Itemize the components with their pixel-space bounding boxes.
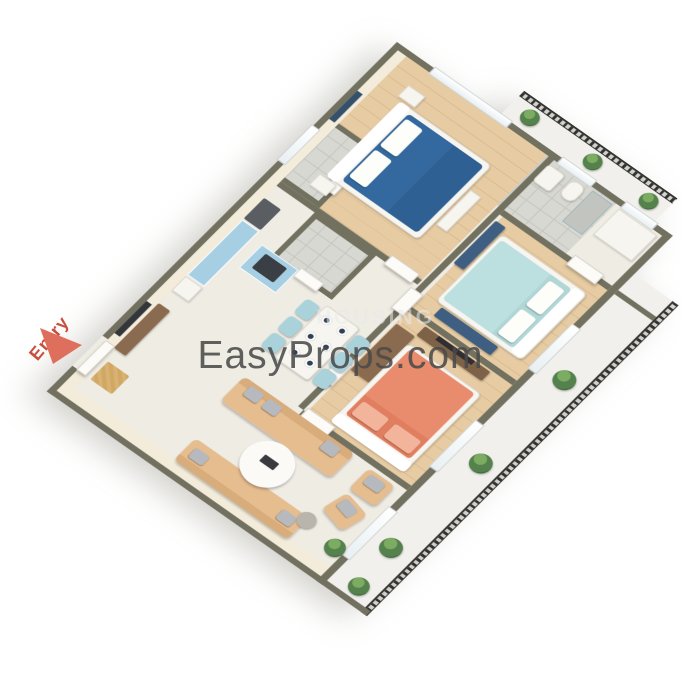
entry-label: Entry: [10, 292, 120, 402]
entry-arrow-icon: [34, 320, 104, 380]
background-watermark: HOUSING: [316, 306, 435, 330]
floorplan-render: HOUSING EasyProps.com Entry: [0, 0, 681, 681]
